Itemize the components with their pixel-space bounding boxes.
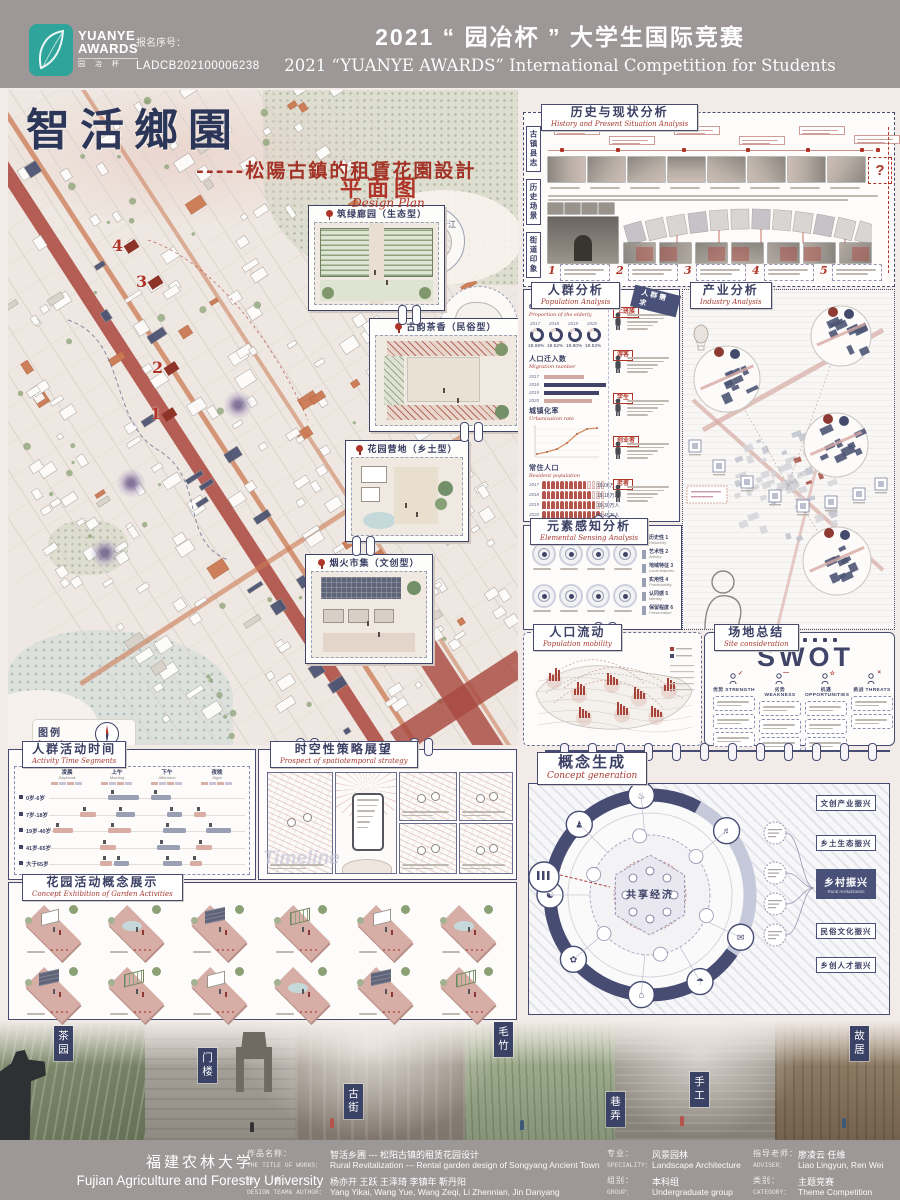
figure [386, 280, 388, 285]
activity-bar [80, 812, 96, 817]
criterion-en: Practicability [649, 583, 685, 587]
axon-tree [191, 979, 198, 986]
swot-column: ✓优势 STRENGTH [713, 673, 755, 747]
caption-stub [462, 815, 491, 817]
persona-stub [627, 486, 669, 488]
activity-figure [166, 856, 169, 860]
screen-stub [357, 827, 368, 829]
concept-title: 概念生成 Concept generation [537, 752, 647, 785]
swot-column-header: 挑战 THREATS [851, 686, 893, 693]
axon-tree [191, 917, 198, 924]
caption-box [560, 264, 610, 281]
swot-stub [855, 705, 879, 707]
axon-figure [302, 927, 304, 932]
street-figure [520, 1120, 524, 1130]
migration-bar [544, 391, 599, 395]
garden-axon-tile [349, 957, 429, 1017]
person-pictogram [565, 501, 569, 509]
swot-column-header: 机遇 OPPORTUNITIES [805, 686, 847, 698]
strip-label-1: 茶园 [54, 1026, 73, 1061]
red-overlay [804, 247, 821, 261]
pavilion [320, 228, 371, 277]
brand-bottom: AWARDS [78, 42, 138, 55]
history-title-en: History and Present Situation Analysis [551, 120, 688, 128]
sensing-element-icon [559, 584, 583, 608]
street-photo [696, 243, 727, 263]
period-scale-cell [75, 782, 82, 785]
strip-label-6: 手工 [690, 1072, 709, 1107]
photo-caption-stub [550, 187, 580, 189]
strip-haze [240, 1020, 500, 1140]
person-pictogram [583, 481, 587, 489]
person-pictogram [542, 481, 546, 489]
callout-connector [398, 305, 407, 325]
photo-collage-strip: 茶园门楼古街毛竹巷弄手工故居 [0, 1020, 900, 1140]
criterion-en: Preservation [649, 611, 685, 615]
callout-connector [412, 305, 421, 325]
figure [405, 503, 407, 508]
strip-label-7: 故居 [850, 1026, 869, 1061]
sketch-figure [431, 792, 440, 801]
population-title-cn: 人群分析 [541, 284, 610, 298]
axon-figure [385, 989, 387, 994]
swot-stub [763, 706, 795, 708]
axon-tree [152, 905, 161, 914]
activity-figure [119, 807, 122, 811]
period-label-en: Daybreak [49, 776, 85, 780]
plaza [323, 633, 414, 652]
gathering-spot [90, 538, 120, 568]
persona-text-stubs [627, 484, 671, 504]
red-overlay [732, 247, 749, 261]
axon-figure [59, 930, 61, 935]
criterion-en: Local features [649, 569, 685, 573]
strategy-panel: Timeline [258, 749, 517, 880]
swot-stub [763, 710, 787, 712]
rating-dot [481, 1011, 483, 1013]
axon-figure [468, 927, 470, 932]
criterion-en: Historicity [649, 541, 685, 545]
donut-value: 18.69% [528, 344, 544, 349]
persona-stub [627, 490, 664, 492]
binding-ring [728, 743, 737, 761]
swot-column-header: 劣势 WEAKNESS [759, 686, 801, 698]
axon-tree [274, 979, 281, 986]
persona-stub [627, 368, 653, 370]
person-pictogram [587, 481, 591, 489]
axon-tree [274, 917, 281, 924]
history-photo [628, 157, 665, 182]
resident-label-en: Resident population [529, 474, 580, 480]
persona-stub [627, 414, 648, 416]
activity-bar [151, 795, 171, 800]
activity-title-en: Activity Time Segments [32, 757, 116, 765]
axon-pond [454, 921, 474, 931]
strategy-sketch-panel [399, 823, 457, 874]
rating-dot [222, 1011, 224, 1013]
swot-stub [717, 723, 741, 725]
binding-ring [672, 743, 681, 761]
person-pictogram [560, 481, 564, 489]
person-pictogram [547, 501, 551, 509]
callout-scene [351, 457, 463, 536]
figure [457, 398, 459, 403]
activity-title: 人群活动时间 Activity Time Segments [22, 741, 126, 768]
callout-connector [352, 536, 361, 556]
binding-ring [784, 743, 793, 761]
hand [342, 859, 392, 874]
activity-figure [197, 807, 200, 811]
rating-dot [300, 949, 302, 951]
activity-figure [160, 840, 163, 844]
swot-stub [809, 728, 833, 730]
map-pin-icon [318, 559, 325, 566]
history-side-tab: 街道印象 [526, 232, 541, 278]
sketch-caption [402, 809, 454, 818]
street-photo [660, 243, 691, 263]
donut-year: 2020 [587, 321, 597, 326]
swot-person-icon: ✓ [729, 673, 739, 685]
svg-text:共享经济: 共享经济 [626, 888, 674, 901]
garden-axon-tile [266, 957, 346, 1017]
binding-ring [840, 743, 849, 761]
person-pictogram [547, 481, 551, 489]
figure [378, 632, 380, 637]
sensing-title-cn: 元素感知分析 [540, 520, 638, 534]
period-scale-cell [167, 782, 174, 785]
person-pictogram [551, 481, 555, 489]
urbanization-line-chart [529, 423, 601, 461]
activity-bar [116, 812, 136, 817]
activity-figure [111, 823, 114, 827]
figure [374, 270, 376, 275]
axon-tree [440, 917, 447, 924]
masterplan-map: 浙江松阳1234图例Legend植物种植Planting河流Planting主道… [8, 90, 518, 745]
person-pictogram [569, 491, 573, 499]
binding-ring [812, 743, 821, 761]
photo-caption-stub [630, 187, 660, 189]
swot-item-box [851, 696, 893, 711]
swot-person-icon: × [867, 673, 877, 685]
credit-value-en: Theme Competition [798, 1187, 872, 1197]
persona-stub [627, 500, 648, 502]
industry-analysis-panel [682, 289, 895, 630]
tile-label-stub [442, 1013, 460, 1015]
axon-tree [357, 917, 364, 924]
rating-dot [398, 949, 400, 951]
age-group-label: 41岁-65岁 [26, 844, 51, 852]
sketch-figure [417, 794, 426, 803]
resident-pictograph [542, 491, 604, 499]
caption-stub [700, 269, 740, 271]
axon-tree [108, 917, 115, 924]
migration-bar [544, 399, 592, 403]
period-scale-cell [225, 782, 232, 785]
timeline-dot [746, 148, 750, 152]
collage-thumb [582, 203, 597, 214]
period-scale-cell [159, 782, 166, 785]
caption-stub [700, 273, 732, 275]
figure [367, 621, 369, 626]
tree [495, 343, 508, 356]
credit-label-cn: 组别： [607, 1175, 634, 1186]
timeline-note [739, 136, 785, 145]
donut-year: 2017 [530, 321, 540, 326]
rating-dot [476, 949, 478, 951]
tile-label-stub [442, 951, 460, 953]
timeline-dot [860, 148, 864, 152]
strategy-title: 时空性策略展望 Prospect of spatiotemporal strat… [270, 741, 418, 768]
axon-tree [235, 905, 244, 914]
axon-pond [288, 983, 308, 993]
rating-dot [149, 1011, 151, 1013]
street-figure [330, 1118, 334, 1128]
rating-dot [305, 1011, 307, 1013]
axon-figure [391, 992, 393, 997]
person-pictogram [551, 501, 555, 509]
persona-stub [627, 328, 648, 330]
caption-stub [402, 815, 433, 817]
sketch-figure [417, 846, 426, 855]
callout-box-1: 筑绿廊园（生态型） [308, 205, 445, 311]
age-group-icon [19, 861, 23, 865]
activity-time-panel: 凌晨Daybreak上午Morning下午Afternoon夜晚Night0岁-… [8, 749, 256, 880]
person-pictogram [542, 491, 546, 499]
credit-value-en: Landscape Architecture [652, 1160, 741, 1170]
sensing-element-icon [613, 542, 637, 566]
sensing-criterion: 实用性 4Practicability [642, 578, 685, 587]
axon-tree [69, 905, 78, 914]
persona-text-stubs [627, 441, 671, 461]
caption-stub [402, 811, 449, 813]
axon-figure [308, 930, 310, 935]
period-label-en: Night [199, 776, 235, 780]
sketch-caption [462, 862, 510, 871]
axon-tree [440, 979, 447, 986]
timeline-note [799, 126, 845, 135]
marker-block [124, 239, 140, 254]
tile-label-stub [110, 1013, 128, 1015]
swot-item-box [805, 701, 847, 716]
swot-stub [717, 705, 741, 707]
street-photo [624, 243, 655, 263]
sensing-element-label [587, 610, 605, 612]
screen-stub [357, 805, 377, 807]
caption-stub [402, 868, 433, 870]
sketch-caption [462, 809, 510, 818]
revitalization-box: 民俗文化振兴 [816, 923, 876, 939]
axon-figure [136, 989, 138, 994]
binding-ring [868, 743, 877, 761]
callout-connector [366, 536, 375, 556]
elderly-label-en: Proportion of the elderly [529, 313, 592, 319]
collage-thumb [548, 203, 563, 214]
callout-box-3: 花园营地（乡土型） [345, 440, 469, 542]
mobility-title-cn: 人口流动 [543, 626, 612, 640]
hut [361, 487, 381, 501]
panel-connector-ring [424, 738, 433, 756]
timeline-dot [682, 148, 686, 152]
activity-bar [163, 828, 187, 833]
photo-caption-stub [750, 187, 780, 189]
migration-year: 2018 [529, 382, 539, 387]
note-stub [742, 143, 770, 145]
figure [443, 388, 445, 393]
figure [416, 512, 418, 517]
axon-tree [25, 979, 32, 986]
strategy-title-cn: 时空性策略展望 [280, 743, 408, 757]
svg-text:⌂: ⌂ [639, 990, 644, 1000]
axon-figure [308, 992, 310, 997]
brand-block: YUANYE AWARDS 园 冶 杯 [78, 29, 138, 68]
lawn [320, 280, 433, 301]
person-pictogram [569, 481, 573, 489]
axon-tree [25, 917, 32, 924]
collage-thumb [565, 203, 580, 214]
street-figure [680, 1116, 684, 1126]
history-photo [668, 157, 705, 182]
sensing-element-icon [532, 542, 556, 566]
caption-stub [462, 811, 505, 813]
phone-body [352, 793, 384, 851]
axon-figure [219, 989, 221, 994]
age-group-icon [19, 828, 23, 832]
rating-dot [139, 1011, 141, 1013]
rating-dot [383, 949, 385, 951]
person-pictogram [574, 491, 578, 499]
history-side-tab: 历史场景 [526, 179, 541, 225]
binding-ring [700, 743, 709, 761]
street-photo [804, 243, 835, 263]
persona-text-stubs [627, 398, 671, 418]
persona-figure-icon [613, 484, 623, 502]
activity-bar [206, 828, 231, 833]
activity-bar [157, 845, 181, 850]
swot-item-box [851, 714, 893, 729]
rating-dot [227, 949, 229, 951]
axon-figure [136, 927, 138, 932]
rating-dot [315, 1011, 317, 1013]
rating-dot [66, 949, 68, 951]
tree [438, 481, 453, 496]
credit-label-en: ADVISER： [753, 1160, 786, 1169]
migration-bar [544, 375, 584, 379]
logo-leaf-icon [29, 24, 73, 76]
yuanye-logo-icon [29, 24, 73, 76]
credit-label-cn: 专业： [607, 1148, 634, 1159]
tree [407, 581, 421, 595]
market-roof [321, 577, 401, 599]
persona-text-stubs [627, 355, 671, 375]
sensing-criterion: 地域特征 3Local features [642, 564, 685, 573]
row-baseline [49, 815, 245, 816]
swot-stub [717, 701, 749, 703]
caption-number: 5 [820, 264, 828, 277]
period-scale-cell [175, 782, 182, 785]
axon-tree [484, 905, 493, 914]
activity-title-cn: 人群活动时间 [32, 743, 116, 757]
caption-number: 3 [684, 264, 692, 277]
activity-figure [199, 840, 202, 844]
gathering-spot [223, 390, 253, 420]
sensing-element-label [587, 568, 605, 570]
rating-dot [388, 1011, 390, 1013]
activity-figure [111, 790, 114, 794]
note-stub [802, 133, 830, 135]
street-figure [842, 1118, 846, 1128]
donut-value: 19.80% [566, 344, 582, 349]
persona-card: 老者 [608, 472, 674, 513]
persona-figure-icon [613, 312, 623, 330]
person-pictogram [574, 501, 578, 509]
roof [387, 405, 505, 419]
donut-year: 2018 [549, 321, 559, 326]
tile-label-stub [110, 951, 128, 953]
activity-bar [100, 845, 116, 850]
credit-label-cn: 作品名称： [247, 1148, 292, 1159]
strip-label-3: 古街 [344, 1084, 363, 1119]
axon-figure [385, 927, 387, 932]
stall [374, 609, 394, 623]
timeline-dot [806, 148, 810, 152]
sensing-element-label [614, 568, 632, 570]
person-pictogram [587, 501, 591, 509]
strip-label-5: 巷弄 [606, 1092, 625, 1127]
competition-title-en: 2021 “YUANYE AWARDS” International Compe… [260, 56, 860, 75]
swot-stub [763, 724, 795, 726]
persona-stub [627, 357, 669, 359]
sketch-figure [489, 792, 498, 801]
swot-item-box [713, 714, 755, 729]
persona-text-stubs [627, 312, 671, 332]
marker-block [162, 407, 178, 422]
age-group-icon [19, 812, 23, 816]
activity-bar [163, 861, 183, 866]
red-overlay [708, 247, 725, 261]
person-pictogram [560, 501, 564, 509]
callout-label: 古韵茶香（民俗型） [370, 319, 518, 334]
photo-caption-stub [790, 187, 820, 189]
callout-box-2: 古韵茶香（民俗型） [369, 318, 518, 432]
sketch-figure [431, 844, 440, 853]
axon-figure [219, 927, 221, 932]
credit-label-en: DESIGN TEAM& AUTHOR： [247, 1187, 325, 1196]
swot-stub [855, 719, 887, 721]
caption-stub [632, 273, 664, 275]
person-pictogram [542, 501, 546, 509]
sensing-element-label [533, 610, 551, 612]
strategy-title-en: Prospect of spatiotemporal strategy [280, 757, 408, 765]
strip-label-4: 毛竹 [494, 1022, 513, 1057]
person-pictogram [560, 491, 564, 499]
caption-number: 1 [548, 264, 556, 277]
population-analysis-panel: 人群需求60岁以上老年人占比Proportion of the elderly2… [523, 289, 680, 522]
axon-figure [59, 992, 61, 997]
persona-stub [627, 497, 653, 499]
garden-axon-tile [183, 895, 263, 955]
person-pictogram [587, 491, 591, 499]
axon-figure [225, 930, 227, 935]
persona-figure-icon [613, 441, 623, 459]
plan-marker-2: 2 [152, 358, 178, 377]
rating-dot [388, 949, 390, 951]
age-group-icon [19, 795, 23, 799]
period-scale-cell [67, 782, 74, 785]
garden-title-cn: 花园活动概念展示 [32, 876, 173, 890]
swot-item-box [713, 696, 755, 711]
period-scale-cell [209, 782, 216, 785]
revitalization-box: 文创产业振兴 [816, 795, 876, 811]
